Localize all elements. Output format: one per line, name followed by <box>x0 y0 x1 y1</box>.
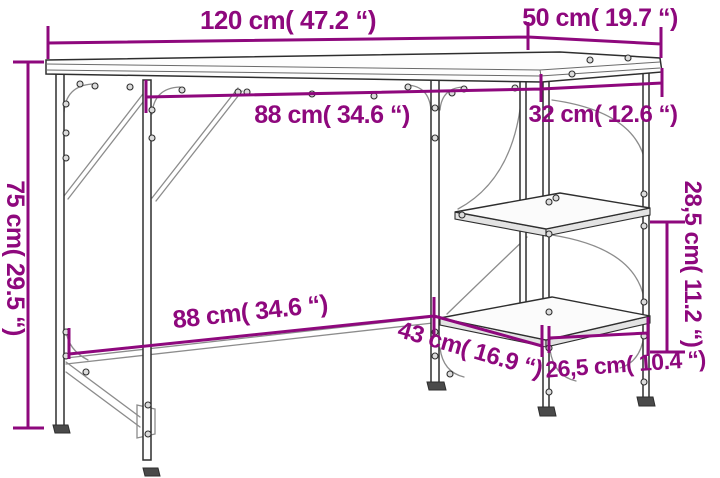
dimension-shelf-width-label: 32 cm( 12.6 “) <box>528 101 677 128</box>
upper-shelf <box>455 193 650 236</box>
dimension-overall-height: 75 cm( 29.5 “) <box>1 62 44 428</box>
dimension-overall-width-label: 120 cm( 47.2 “) <box>200 5 376 35</box>
dimension-overall-depth-label: 50 cm( 19.7 “) <box>522 4 678 32</box>
dimension-top-clearance-width: 88 cm( 34.6 “) <box>146 74 541 129</box>
dimension-top-clearance-label: 88 cm( 34.6 “) <box>254 101 410 129</box>
dimension-overall-width: 120 cm( 47.2 “) <box>48 5 528 59</box>
dimension-bottom-clearance-width: 88 cm( 34.6 “) <box>69 290 434 359</box>
dimension-bottom-clearance-label: 88 cm( 34.6 “) <box>171 290 329 334</box>
desktop <box>46 52 662 82</box>
dimension-shelf-depth-label: 26,5 cm( 10.4 “) <box>544 345 706 382</box>
dimension-shelf-gap-height: 28,5 cm( 11.2 “) <box>650 181 706 352</box>
dimension-shelf-gap-label: 28,5 cm( 11.2 “) <box>679 181 706 348</box>
dimension-overall-depth: 50 cm( 19.7 “) <box>522 4 678 58</box>
diagram-canvas: 120 cm( 47.2 “) 50 cm( 19.7 “) 88 cm( 34… <box>0 0 720 478</box>
desk-diagram-svg: 120 cm( 47.2 “) 50 cm( 19.7 “) 88 cm( 34… <box>0 0 720 478</box>
dimension-overall-height-label: 75 cm( 29.5 “) <box>1 180 29 336</box>
